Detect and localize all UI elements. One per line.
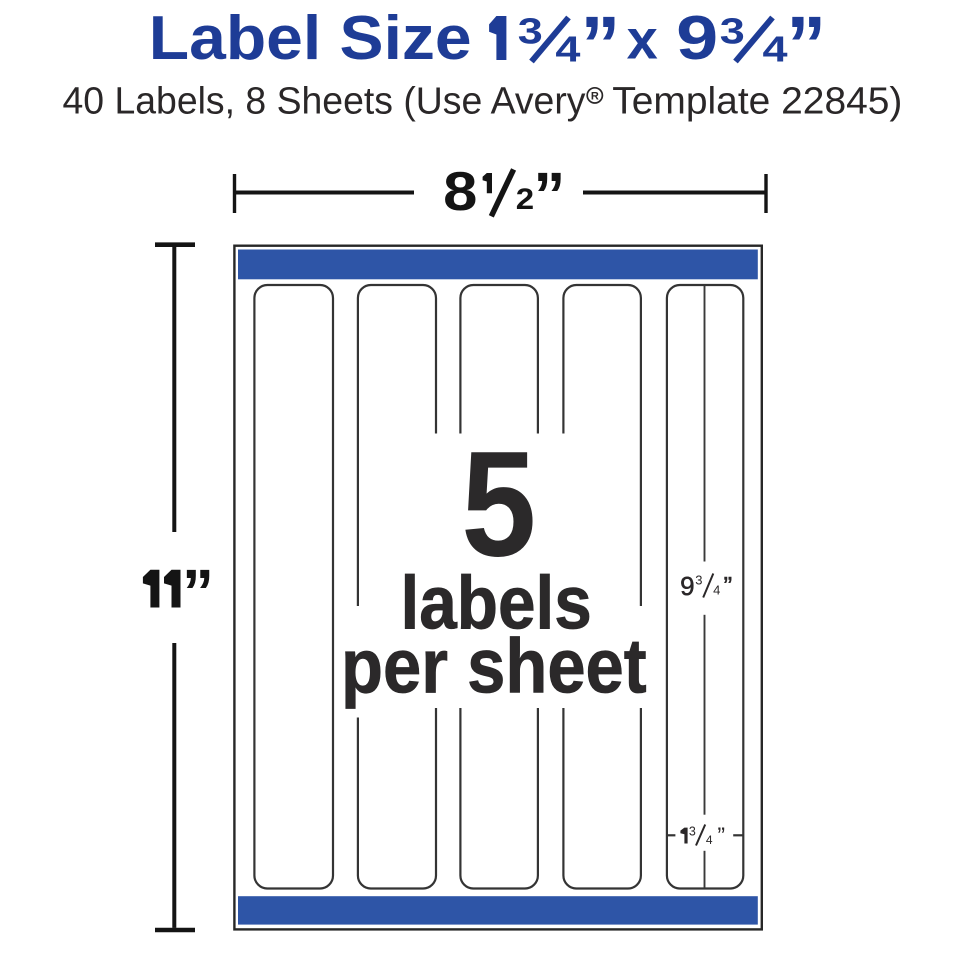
- svg-text:3: 3: [720, 11, 745, 52]
- svg-text:4: 4: [713, 583, 720, 598]
- svg-text:3: 3: [518, 11, 543, 52]
- svg-text:3: 3: [689, 825, 696, 839]
- svg-text:x: x: [627, 8, 658, 71]
- svg-text:”: ”: [182, 556, 214, 628]
- svg-text:9: 9: [680, 571, 694, 601]
- svg-text:4: 4: [555, 29, 580, 70]
- svg-text:”: ”: [533, 159, 565, 231]
- svg-text:2: 2: [516, 181, 534, 215]
- svg-text:40 Labels, 8 Sheets (Use Avery: 40 Labels, 8 Sheets (Use Avery: [63, 79, 586, 121]
- svg-text:9: 9: [676, 3, 718, 73]
- svg-text:”: ”: [786, 0, 826, 89]
- svg-text:R: R: [591, 90, 599, 102]
- svg-text:Template 22845): Template 22845): [612, 80, 902, 122]
- svg-text:3: 3: [695, 573, 702, 588]
- svg-text:per sheet: per sheet: [341, 624, 647, 709]
- svg-text:4: 4: [706, 833, 713, 847]
- svg-text:”: ”: [717, 823, 725, 849]
- svg-text:8: 8: [443, 161, 477, 222]
- svg-text:”: ”: [723, 571, 732, 601]
- svg-text:4: 4: [762, 29, 787, 70]
- svg-text:”: ”: [580, 0, 620, 89]
- svg-text:Label Size: Label Size: [149, 3, 472, 73]
